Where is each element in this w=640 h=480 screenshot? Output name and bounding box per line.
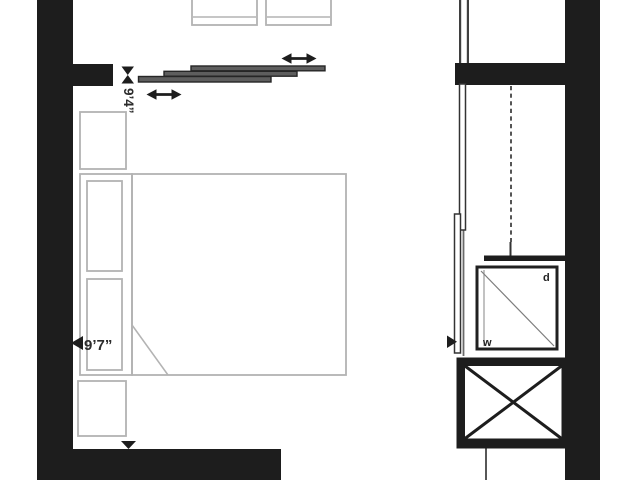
- svg-text:9’4”: 9’4”: [121, 88, 136, 114]
- svg-text:w: w: [482, 337, 492, 349]
- svg-text:9’7”: 9’7”: [84, 337, 112, 354]
- svg-text:d: d: [543, 272, 550, 284]
